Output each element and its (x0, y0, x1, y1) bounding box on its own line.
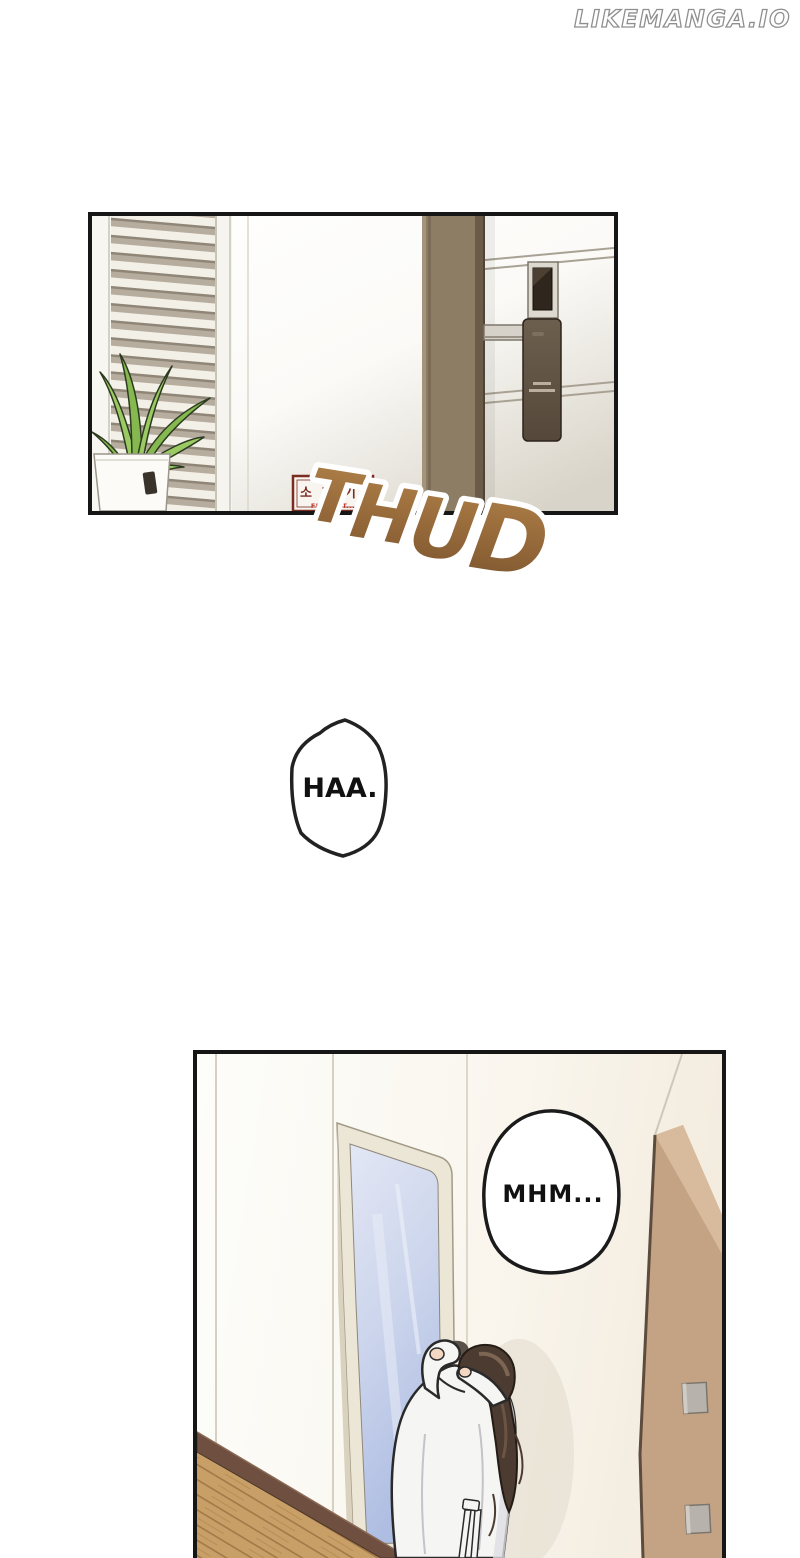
watermark-text: LIKEMANGA.IO (574, 5, 791, 33)
site-watermark: LIKEMANGA.IO (555, 2, 795, 36)
thud-sfx: THUD (294, 436, 566, 572)
speech-bubble-haa: HAA. (283, 716, 395, 862)
speech-bubble-mhm: MHM... (484, 1111, 619, 1273)
thud-text: THUD (298, 452, 553, 599)
panel-2-art: MHM... (197, 1054, 722, 1558)
panel-mirror-embrace: MHM... (193, 1050, 726, 1558)
manga-reader-page: LIKEMANGA.IO (0, 0, 800, 1558)
haa-text: HAA. (302, 773, 377, 804)
mhm-text: MHM... (502, 1180, 603, 1208)
lock-body (523, 319, 561, 441)
